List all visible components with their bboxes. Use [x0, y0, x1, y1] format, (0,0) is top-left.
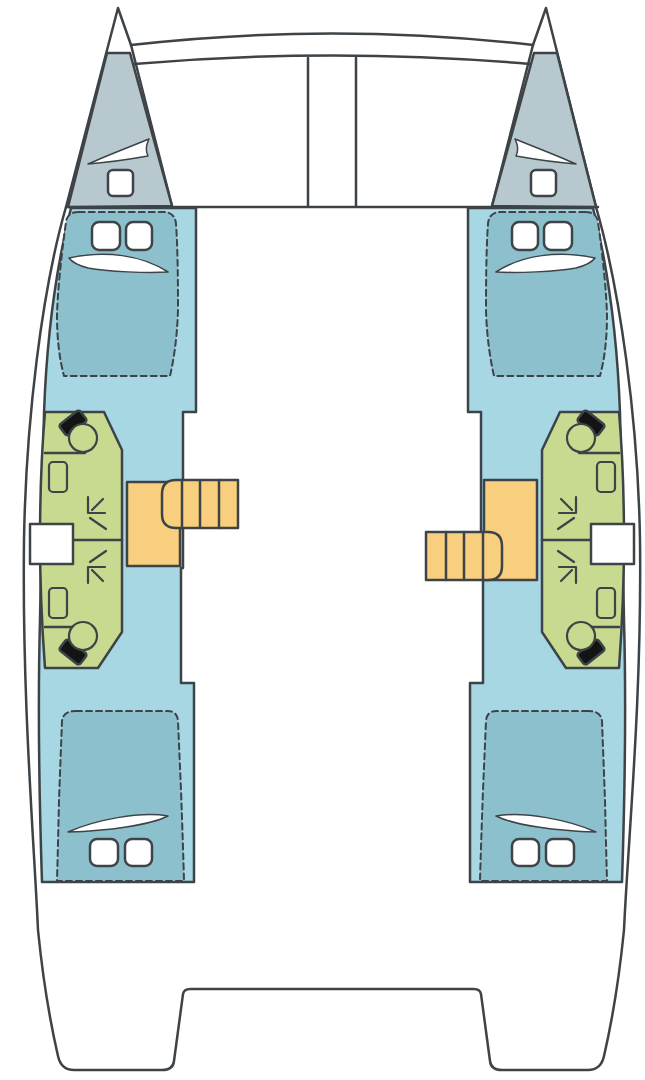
pillow: [92, 222, 120, 250]
pillow: [126, 222, 152, 250]
toilet-bowl: [69, 424, 97, 452]
aft-double-berth: [57, 711, 184, 881]
sink: [49, 588, 67, 618]
pillow: [125, 839, 152, 866]
toilet-bowl: [69, 622, 97, 650]
sink: [49, 462, 67, 492]
boat: [24, 8, 640, 1070]
bow-window: [108, 170, 133, 196]
side-gate: [30, 524, 73, 564]
pillow: [90, 839, 118, 866]
catamaran-floor-plan: [0, 0, 645, 1080]
